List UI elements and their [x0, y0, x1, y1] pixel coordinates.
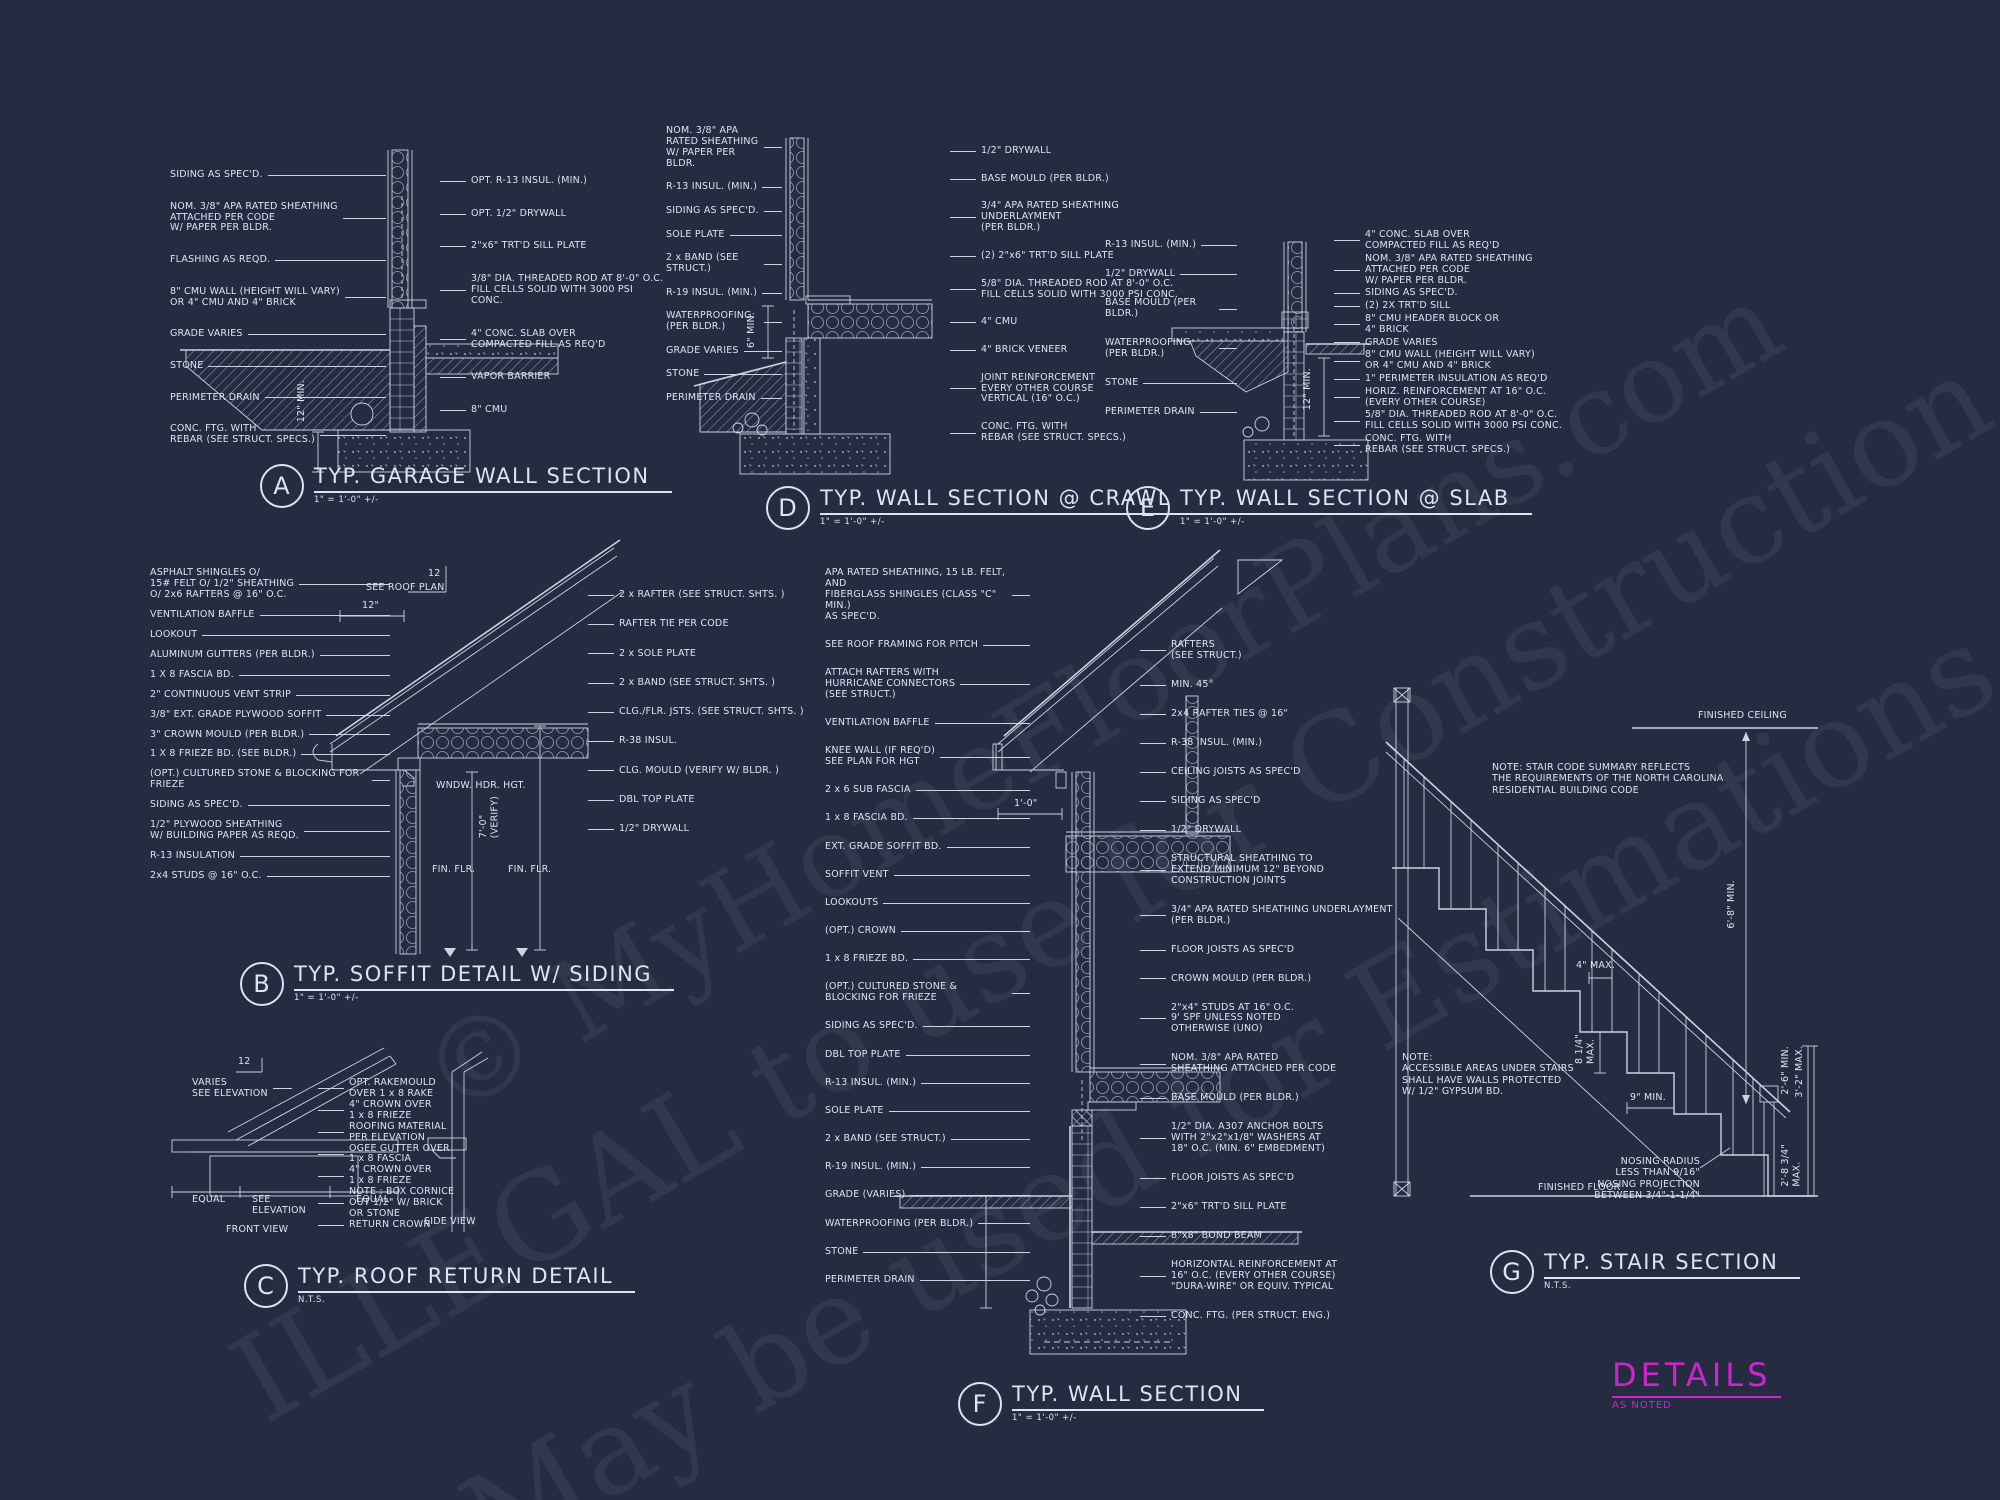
- callout-label: 4" CONC. SLAB OVER COMPACTED FILL AS REQ…: [440, 329, 665, 351]
- leader-line: [1140, 1018, 1166, 1019]
- leader-line: [950, 179, 976, 180]
- leader-line: [588, 683, 614, 684]
- callout-label: 1/2" DIA. A307 ANCHOR BOLTS WITH 2"x2"x1…: [1140, 1122, 1395, 1155]
- blueprint-details-sheet: © MyHomeFloorPlans.com ILLEGAL to use fo…: [0, 0, 2000, 1500]
- callout-text: HORIZONTAL REINFORCEMENT AT 16" O.C. (EV…: [1171, 1260, 1337, 1293]
- leader-line: [260, 615, 390, 616]
- callout-text: RAFTER TIE PER CODE: [619, 619, 729, 630]
- equal-dimension-label: EQUAL: [356, 1194, 389, 1205]
- leader-line: [1334, 293, 1360, 294]
- callout-text: 2" CONTINUOUS VENT STRIP: [150, 690, 291, 701]
- leader-line: [883, 903, 1030, 904]
- callout-label: 8" CMU HEADER BLOCK OR 4" BRICK: [1334, 314, 1569, 336]
- callout-label: MIN. 45°: [1140, 680, 1395, 691]
- callout-text: STONE: [1105, 378, 1138, 389]
- leader-line: [1140, 801, 1166, 802]
- callout-text: 2x4 STUDS @ 16" O.C.: [150, 871, 262, 882]
- sheet-scale-note: AS NOTED: [1612, 1400, 1781, 1411]
- leader-line: [275, 260, 386, 261]
- leader-line: [923, 1026, 1030, 1027]
- callout-text: SIDING AS SPEC'D.: [150, 800, 243, 811]
- callout-label: 2x4 RAFTER TIES @ 16": [1140, 709, 1395, 720]
- callout-label: OPT. 1/2" DRYWALL: [440, 209, 665, 220]
- leader-line: [440, 214, 466, 215]
- leader-line: [764, 147, 782, 148]
- sheet-title-block: DETAILS AS NOTED: [1612, 1356, 1781, 1411]
- callout-label: SIDING AS SPEC'D.: [1334, 288, 1569, 299]
- callout-text: ROOFING MATERIAL PER ELEVATION: [349, 1122, 446, 1144]
- callout-text: OGEE GUTTER OVER 1 x 8 FASCIA: [349, 1144, 450, 1166]
- leader-line: [1140, 1276, 1166, 1277]
- callout-text: 4" CONC. SLAB OVER COMPACTED FILL AS REQ…: [1365, 230, 1500, 252]
- callout-text: 3" CROWN MOULD (PER BLDR.): [150, 730, 304, 741]
- leader-line: [1143, 383, 1237, 384]
- leader-line: [947, 847, 1030, 848]
- callout-label: DBL TOP PLATE: [588, 795, 823, 806]
- leader-line: [1140, 743, 1166, 744]
- callout-label: SIDING AS SPEC'D.: [150, 800, 390, 811]
- callout-label: 1/2" DRYWALL: [950, 146, 1200, 157]
- callout-label: WATERPROOFING (PER BLDR.): [1105, 338, 1237, 360]
- callout-label: LOOKOUTS: [825, 898, 1030, 909]
- leader-line: [1219, 309, 1237, 310]
- detail-f-title: F TYP. WALL SECTION 1" = 1'-0" +/-: [958, 1382, 1264, 1426]
- leader-line: [588, 624, 614, 625]
- leader-line: [950, 151, 976, 152]
- leader-line: [978, 1223, 1030, 1224]
- callout-label: ALUMINUM GUTTERS (PER BLDR.): [150, 650, 390, 661]
- detail-title-text: TYP. WALL SECTION: [1012, 1382, 1264, 1411]
- callout-label: SOLE PLATE: [825, 1106, 1030, 1117]
- detail-e-left-callouts: R-13 INSUL. (MIN.) 1/2" DRYWALL BASE MOU…: [1105, 240, 1237, 418]
- detail-scale-text: 1" = 1'-0" +/-: [314, 495, 672, 505]
- leader-line: [1334, 342, 1360, 343]
- leader-line: [588, 770, 614, 771]
- leader-line: [1140, 685, 1166, 686]
- callout-label: SOLE PLATE: [666, 230, 782, 241]
- leader-line: [1140, 1236, 1166, 1237]
- detail-b-right-callouts: 2 x RAFTER (SEE STRUCT. SHTS. ) RAFTER T…: [588, 590, 823, 835]
- callout-label: 2"x4" STUDS AT 16" O.C. 9' SPF UNLESS NO…: [1140, 1003, 1395, 1036]
- leader-line: [588, 595, 614, 596]
- callout-label: STONE: [666, 369, 782, 380]
- leader-line: [318, 1110, 344, 1111]
- leader-line: [343, 218, 386, 219]
- callout-label: 2 x SOLE PLATE: [588, 649, 823, 660]
- callout-text: CLG. MOULD (VERIFY W/ BLDR. ): [619, 766, 779, 777]
- leader-line: [318, 1132, 344, 1133]
- callout-text: KNEE WALL (IF REQ'D) SEE PLAN FOR HGT: [825, 746, 935, 768]
- leader-line: [202, 635, 390, 636]
- callout-label: GRADE VARIES: [666, 346, 782, 357]
- callout-label: 5/8" DIA. THREADED ROD AT 8'-0" O.C. FIL…: [1334, 410, 1569, 432]
- callout-text: 1/2" DIA. A307 ANCHOR BOLTS WITH 2"x2"x1…: [1171, 1122, 1325, 1155]
- leader-line: [273, 1088, 292, 1089]
- callout-text: STRUCTURAL SHEATHING TO EXTEND MINIMUM 1…: [1171, 854, 1324, 887]
- callout-text: BASE MOULD (PER BLDR.): [1105, 298, 1214, 320]
- callout-text: FLOOR JOISTS AS SPEC'D: [1171, 945, 1294, 956]
- callout-text: PERIMETER DRAIN: [825, 1275, 915, 1286]
- tread-dimension-label: 9" MIN.: [1630, 1092, 1666, 1103]
- callout-text: 1/2" DRYWALL: [1105, 269, 1175, 280]
- callout-text: 8" CMU HEADER BLOCK OR 4" BRICK: [1365, 314, 1499, 336]
- see-roof-plan-note: SEE ROOF PLAN: [366, 582, 445, 593]
- callout-text: R-13 INSUL. (MIN.): [825, 1078, 916, 1089]
- sheet-title: DETAILS: [1612, 1356, 1781, 1398]
- callout-text: OPT. RAKEMOULD OVER 1 x 8 RAKE: [349, 1078, 436, 1100]
- leader-line: [440, 377, 466, 378]
- callout-text: 2x4 RAFTER TIES @ 16": [1171, 709, 1288, 720]
- callout-label: CLG. MOULD (VERIFY W/ BLDR. ): [588, 766, 823, 777]
- detail-e-title: E TYP. WALL SECTION @ SLAB 1" = 1'-0" +/…: [1126, 486, 1532, 530]
- callout-text: 2 x RAFTER (SEE STRUCT. SHTS. ): [619, 590, 785, 601]
- callout-label: 3/8" DIA. THREADED ROD AT 8'-0" O.C. FIL…: [440, 274, 665, 307]
- leader-line: [935, 723, 1030, 724]
- leader-line: [1334, 379, 1360, 380]
- detail-a-left-callouts: SIDING AS SPEC'D. NOM. 3/8" APA RATED SH…: [170, 170, 386, 446]
- callout-text: SIDING AS SPEC'D.: [170, 170, 263, 181]
- detail-letter-bubble: C: [244, 1264, 288, 1308]
- callout-label: HORIZONTAL REINFORCEMENT AT 16" O.C. (EV…: [1140, 1260, 1395, 1293]
- callout-label: WATERPROOFING (PER BLDR.): [666, 311, 782, 333]
- callout-label: 2 x RAFTER (SEE STRUCT. SHTS. ): [588, 590, 823, 601]
- callout-text: BASE MOULD (PER BLDR.): [981, 174, 1109, 185]
- callout-text: CEILING JOISTS AS SPEC'D: [1171, 767, 1301, 778]
- callout-label: 1 X 8 FASCIA BD.: [150, 670, 390, 681]
- leader-line: [762, 293, 782, 294]
- leader-line: [318, 1203, 344, 1204]
- callout-text: 1 X 8 FRIEZE BD. (SEE BLDR.): [150, 749, 296, 760]
- callout-text: 4" CMU: [981, 317, 1017, 328]
- callout-text: PERIMETER DRAIN: [1105, 407, 1195, 418]
- callout-label: 2 x BAND (SEE STRUCT. SHTS. ): [588, 678, 823, 689]
- leader-line: [913, 818, 1030, 819]
- callout-label: KNEE WALL (IF REQ'D) SEE PLAN FOR HGT: [825, 746, 1030, 768]
- callout-label: BASE MOULD (PER BLDR.): [950, 174, 1200, 185]
- detail-scale-text: N.T.S.: [298, 1295, 635, 1305]
- leader-line: [304, 831, 390, 832]
- leader-line: [940, 757, 1030, 758]
- callout-text: (2) 2"x6" TRT'D SILL PLATE: [981, 251, 1114, 262]
- callout-label: FLASHING AS REQD.: [170, 255, 386, 266]
- leader-line: [1140, 830, 1166, 831]
- callout-text: STONE: [825, 1247, 858, 1258]
- callout-text: STONE: [666, 369, 699, 380]
- leader-line: [950, 388, 976, 389]
- handrail-min-dimension-label: 2'-6" MIN.: [1780, 1046, 1791, 1095]
- callout-text: APA RATED SHEATHING, 15 LB. FELT, AND FI…: [825, 568, 1007, 623]
- leader-line: [1219, 348, 1237, 349]
- callout-label: BASE MOULD (PER BLDR.): [1140, 1093, 1395, 1104]
- callout-text: 1 X 8 FASCIA BD.: [150, 670, 234, 681]
- callout-label: SOFFIT VENT: [825, 870, 1030, 881]
- leader-line: [1140, 1316, 1166, 1317]
- leader-line: [440, 181, 466, 182]
- detail-letter-bubble: E: [1126, 486, 1170, 530]
- leader-line: [1334, 270, 1360, 271]
- callout-label: SIDING AS SPEC'D.: [170, 170, 386, 181]
- detail-title-text: TYP. GARAGE WALL SECTION: [314, 464, 672, 493]
- callout-text: 2 x SOLE PLATE: [619, 649, 696, 660]
- leader-line: [309, 734, 390, 735]
- callout-label: 3/4" APA RATED SHEATHING UNDERLAYMENT (P…: [950, 201, 1200, 234]
- leader-line: [950, 433, 976, 434]
- callout-text: R-19 INSUL. (MIN.): [825, 1162, 916, 1173]
- callout-text: 1 x 8 FASCIA BD.: [825, 813, 908, 824]
- callout-label: STONE: [1105, 378, 1237, 389]
- callout-label: VENTILATION BAFFLE: [150, 610, 390, 621]
- callout-label: NOM. 3/8" APA RATED SHEATHING W/ PAPER P…: [666, 126, 782, 170]
- callout-text: 3/8" EXT. GRADE PLYWOOD SOFFIT: [150, 710, 321, 721]
- leader-line: [1334, 306, 1360, 307]
- callout-text: SIDING AS SPEC'D: [1171, 796, 1261, 807]
- leader-line: [588, 800, 614, 801]
- callout-text: 2"x6" TRT'D SILL PLATE: [471, 241, 587, 252]
- callout-text: 8" CMU WALL (HEIGHT WILL VARY) OR 4" CMU…: [170, 287, 340, 309]
- callout-label: GRADE (VARIES): [825, 1190, 1030, 1201]
- leader-line: [951, 1139, 1030, 1140]
- callout-label: 8" CMU WALL (HEIGHT WILL VARY) OR 4" CMU…: [170, 287, 386, 309]
- callout-text: FLOOR JOISTS AS SPEC'D: [1171, 1173, 1294, 1184]
- leader-line: [950, 217, 976, 218]
- callout-label: R-38 INSUL.: [588, 736, 823, 747]
- callout-text: OPT. R-13 INSUL. (MIN.): [471, 176, 587, 187]
- callout-label: STONE: [825, 1247, 1030, 1258]
- leader-line: [1140, 772, 1166, 773]
- callout-label: R-13 INSUL. (MIN.): [666, 182, 782, 193]
- callout-text: 1/2" PLYWOOD SHEATHING W/ BUILDING PAPER…: [150, 820, 299, 842]
- leader-line: [301, 754, 390, 755]
- callout-text: (OPT.) CULTURED STONE & BLOCKING FOR FRI…: [825, 982, 1007, 1004]
- callout-text: 4" CROWN OVER 1 x 8 FRIEZE: [349, 1165, 432, 1187]
- callout-text: 3/4" APA RATED SHEATHING UNDERLAYMENT (P…: [981, 201, 1200, 234]
- callout-label: VAPOR BARRIER: [440, 372, 665, 383]
- detail-letter-bubble: D: [766, 486, 810, 530]
- callout-label: 1/2" DRYWALL: [588, 824, 823, 835]
- detail-scale-text: 1" = 1'-0" +/-: [1012, 1413, 1264, 1423]
- callout-text: VARIES SEE ELEVATION: [192, 1078, 268, 1100]
- callout-label: APA RATED SHEATHING, 15 LB. FELT, AND FI…: [825, 568, 1030, 623]
- leader-line: [960, 684, 1030, 685]
- callout-label: OGEE GUTTER OVER 1 x 8 FASCIA: [318, 1144, 488, 1166]
- baluster-spacing-label: 4" MAX.: [1576, 960, 1615, 971]
- callout-text: 1/2" DRYWALL: [619, 824, 689, 835]
- callout-text: 2 x BAND (SEE STRUCT. SHTS. ): [619, 678, 775, 689]
- callout-label: LOOKOUT: [150, 630, 390, 641]
- callout-text: (OPT.) CULTURED STONE & BLOCKING FOR FRI…: [150, 769, 367, 791]
- leader-line: [1012, 595, 1030, 596]
- callout-label: GRADE VARIES: [170, 329, 386, 340]
- detail-a-title: A TYP. GARAGE WALL SECTION 1" = 1'-0" +/…: [260, 464, 672, 508]
- callout-text: NOM. 3/8" APA RATED SHEATHING W/ PAPER P…: [666, 126, 759, 170]
- callout-text: CONC. FTG. (PER STRUCT. ENG.): [1171, 1311, 1330, 1322]
- leader-line: [440, 246, 466, 247]
- callout-text: HORIZ. REINFORCEMENT AT 16" O.C. (EVERY …: [1365, 387, 1546, 409]
- callout-text: VENTILATION BAFFLE: [150, 610, 255, 621]
- leader-line: [588, 653, 614, 654]
- callout-text: R-13 INSUL. (MIN.): [666, 182, 757, 193]
- callout-label: NOM. 3/8" APA RATED SHEATHING ATTACHED P…: [170, 202, 386, 235]
- equal-dimension-label: EQUAL: [192, 1194, 225, 1205]
- leader-line: [1334, 445, 1360, 446]
- callout-text: 2 x 6 SUB FASCIA: [825, 785, 911, 796]
- detail-b-left-callouts: ASPHALT SHINGLES O/ 15# FELT O/ 1/2" SHE…: [150, 568, 390, 882]
- callout-text: SOFFIT VENT: [825, 870, 889, 881]
- leader-line: [1334, 324, 1360, 325]
- callout-label: SIDING AS SPEC'D: [1140, 796, 1395, 807]
- leader-line: [950, 322, 976, 323]
- leader-line: [318, 1154, 344, 1155]
- callout-label: FLOOR JOISTS AS SPEC'D: [1140, 1173, 1395, 1184]
- callout-label: 3" CROWN MOULD (PER BLDR.): [150, 730, 390, 741]
- callout-label: (2) 2X TRT'D SILL: [1334, 301, 1569, 312]
- leader-line: [913, 959, 1030, 960]
- leader-line: [764, 322, 782, 323]
- callout-label: STRUCTURAL SHEATHING TO EXTEND MINIMUM 1…: [1140, 854, 1395, 887]
- leader-line: [1140, 1138, 1166, 1139]
- callout-text: R-13 INSULATION: [150, 851, 235, 862]
- callout-text: SIDING AS SPEC'D.: [1365, 288, 1458, 299]
- callout-label: PERIMETER DRAIN: [825, 1275, 1030, 1286]
- pitch-label: 12: [238, 1056, 251, 1067]
- leader-line: [761, 398, 782, 399]
- callout-text: PERIMETER DRAIN: [170, 393, 260, 404]
- callout-text: 3/4" APA RATED SHEATHING UNDERLAYMENT (P…: [1171, 905, 1393, 927]
- callout-label: CROWN MOULD (PER BLDR.): [1140, 974, 1395, 985]
- detail-scale-text: N.T.S.: [1544, 1281, 1800, 1291]
- callout-label: WATERPROOFING (PER BLDR.): [825, 1219, 1030, 1230]
- callout-label: R-19 INSUL. (MIN.): [825, 1162, 1030, 1173]
- callout-label: (OPT.) CROWN: [825, 926, 1030, 937]
- leader-line: [764, 264, 782, 265]
- callout-label: 2 x BAND (SEE STRUCT.): [666, 253, 782, 275]
- callout-text: 2"x4" STUDS AT 16" O.C. 9' SPF UNLESS NO…: [1171, 1003, 1294, 1036]
- callout-text: LOOKOUT: [150, 630, 197, 641]
- leader-line: [296, 695, 390, 696]
- leader-line: [730, 235, 782, 236]
- leader-line: [910, 1195, 1030, 1196]
- callout-text: SIDING AS SPEC'D.: [825, 1021, 918, 1032]
- leader-line: [267, 876, 390, 877]
- finished-ceiling-label: FINISHED CEILING: [1698, 710, 1787, 721]
- leader-line: [318, 1176, 344, 1177]
- leader-line: [440, 339, 466, 340]
- leader-line: [320, 435, 386, 436]
- callout-text: 2 x BAND (SEE STRUCT.): [666, 253, 759, 275]
- callout-text: 1/2" DRYWALL: [981, 146, 1051, 157]
- riser-dimension-label: 8 1/4" MAX.: [1574, 1034, 1597, 1064]
- callout-text: 1 x 8 FRIEZE BD.: [825, 954, 908, 965]
- callout-text: GRADE (VARIES): [825, 1190, 905, 1201]
- window-header-height-label: WNDW. HDR. HGT.: [436, 780, 526, 791]
- callout-label: 2 x BAND (SEE STRUCT.): [825, 1134, 1030, 1145]
- callout-text: 3/8" DIA. THREADED ROD AT 8'-0" O.C. FIL…: [471, 274, 665, 307]
- callout-text: ALUMINUM GUTTERS (PER BLDR.): [150, 650, 315, 661]
- callout-text: BASE MOULD (PER BLDR.): [1171, 1093, 1299, 1104]
- leader-line: [901, 931, 1030, 932]
- leader-line: [764, 211, 782, 212]
- callout-label: NOM. 3/8" APA RATED SHEATHING ATTACHED P…: [1140, 1053, 1395, 1075]
- callout-label: RAFTER TIE PER CODE: [588, 619, 823, 630]
- callout-label: VENTILATION BAFFLE: [825, 718, 1030, 729]
- callout-label: ROOFING MATERIAL PER ELEVATION: [318, 1122, 488, 1144]
- callout-label: 2"x6" TRT'D SILL PLATE: [440, 241, 665, 252]
- leader-line: [372, 780, 390, 781]
- callout-label: EXT. GRADE SOFFIT BD.: [825, 842, 1030, 853]
- leader-line: [1140, 950, 1166, 951]
- leader-line: [1140, 1207, 1166, 1208]
- stair-code-note: NOTE: STAIR CODE SUMMARY REFLECTS THE RE…: [1492, 762, 1723, 796]
- leader-line: [1334, 240, 1360, 241]
- callout-label: R-13 INSUL. (MIN.): [825, 1078, 1030, 1089]
- callout-label: 8"x8" BOND BEAM: [1140, 1231, 1395, 1242]
- callout-label: 1 x 8 FRIEZE BD.: [825, 954, 1030, 965]
- callout-text: ATTACH RAFTERS WITH HURRICANE CONNECTORS…: [825, 668, 955, 701]
- leader-line: [921, 1167, 1030, 1168]
- callout-text: SOLE PLATE: [666, 230, 725, 241]
- callout-text: JOINT REINFORCEMENT EVERY OTHER COURSE V…: [981, 373, 1095, 406]
- leader-line: [208, 366, 386, 367]
- leader-line: [950, 256, 976, 257]
- callout-text: CROWN MOULD (PER BLDR.): [1171, 974, 1311, 985]
- detail-f-right-callouts: RAFTERS (SEE STRUCT.) MIN. 45° 2x4 RAFTE…: [1140, 640, 1395, 1322]
- callout-label: DBL TOP PLATE: [825, 1050, 1030, 1061]
- leader-line: [1140, 714, 1166, 715]
- callout-label: 1/2" DRYWALL: [1105, 269, 1237, 280]
- callout-label: CONC. FTG. WITH REBAR (SEE STRUCT. SPECS…: [1334, 434, 1569, 456]
- callout-text: 4" BRICK VENEER: [981, 345, 1067, 356]
- callout-label: HORIZ. REINFORCEMENT AT 16" O.C. (EVERY …: [1334, 387, 1569, 409]
- callout-text: MIN. 45°: [1171, 680, 1214, 691]
- detail-c-center-callouts: OPT. RAKEMOULD OVER 1 x 8 RAKE 4" CROWN …: [318, 1078, 488, 1228]
- callout-text: 2 x BAND (SEE STRUCT.): [825, 1134, 946, 1145]
- callout-text: FLASHING AS REQD.: [170, 255, 270, 266]
- callout-text: DBL TOP PLATE: [619, 795, 695, 806]
- see-elevation-label: SEE ELEVATION: [252, 1194, 306, 1217]
- detail-b-title: B TYP. SOFFIT DETAIL W/ SIDING 1" = 1'-0…: [240, 962, 674, 1006]
- callout-label: R-13 INSULATION: [150, 851, 390, 862]
- leader-line: [1140, 870, 1166, 871]
- callout-text: GRADE VARIES: [170, 329, 243, 340]
- callout-text: CLG./FLR. JSTS. (SEE STRUCT. SHTS. ): [619, 707, 804, 718]
- callout-text: 1" PERIMETER INSULATION AS REQ'D: [1365, 374, 1548, 385]
- leader-line: [248, 334, 386, 335]
- detail-title-text: TYP. WALL SECTION @ SLAB: [1180, 486, 1532, 515]
- leader-line: [1334, 397, 1360, 398]
- callout-text: 4" CONC. SLAB OVER COMPACTED FILL AS REQ…: [471, 329, 606, 351]
- callout-label: NOM. 3/8" APA RATED SHEATHING ATTACHED P…: [1334, 254, 1569, 287]
- leader-line: [1140, 1064, 1166, 1065]
- callout-label: PERIMETER DRAIN: [1105, 407, 1237, 418]
- leader-line: [588, 741, 614, 742]
- leader-line: [440, 290, 466, 291]
- callout-label: PERIMETER DRAIN: [666, 393, 782, 404]
- dimension-label: 6" MIN.: [746, 312, 757, 348]
- leader-line: [916, 790, 1030, 791]
- leader-line: [1140, 650, 1166, 651]
- callout-text: VENTILATION BAFFLE: [825, 718, 930, 729]
- callout-label: R-19 INSUL. (MIN.): [666, 288, 782, 299]
- finish-floor-label: FIN. FLR.: [508, 864, 551, 875]
- callout-text: 2"x6" TRT'D SILL PLATE: [1171, 1202, 1287, 1213]
- leader-line: [1140, 1178, 1166, 1179]
- callout-text: GRADE VARIES: [666, 346, 739, 357]
- callout-text: (OPT.) CROWN: [825, 926, 896, 937]
- detail-letter-bubble: G: [1490, 1250, 1534, 1294]
- callout-label: 4" CROWN OVER 1 x 8 FRIEZE: [318, 1165, 488, 1187]
- leader-line: [326, 715, 390, 716]
- dimension-label: 12": [362, 600, 379, 611]
